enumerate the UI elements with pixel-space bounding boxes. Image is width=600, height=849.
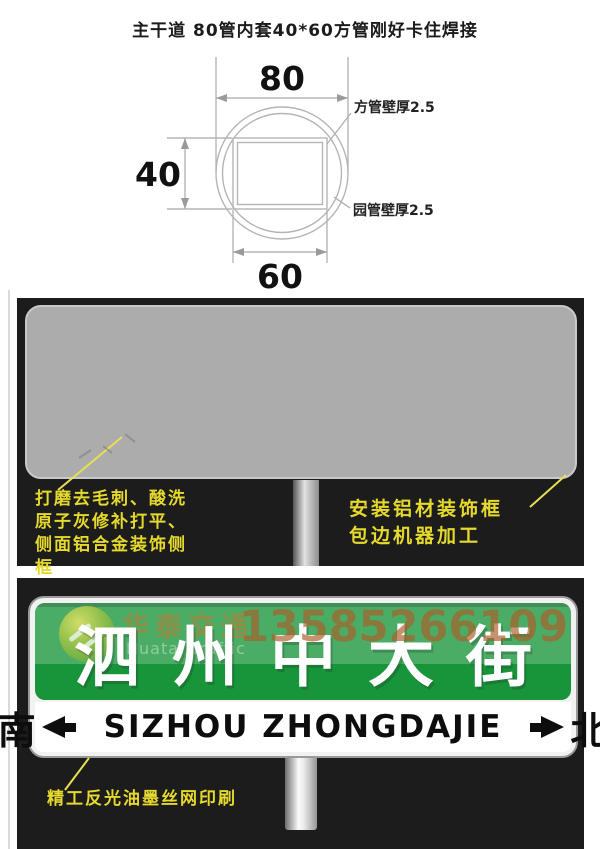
note-line: 安装铝材装饰框: [349, 496, 503, 523]
leader-line-round-tube: [334, 197, 350, 208]
street-sign-board: 华泰交通 Huatai Traffic 泗州中大街 13585266109 南 …: [28, 596, 578, 758]
square-tube-inner-rect: [238, 143, 323, 205]
note-line: 原子灰修补打平、: [35, 511, 187, 534]
sign-pole: [293, 480, 319, 566]
arrow-right-icon: [530, 716, 564, 738]
blank-sign-board: [25, 305, 577, 479]
direction-north-label: 北: [570, 700, 600, 755]
arrow-left-icon: [42, 716, 76, 738]
dimension-60: 60: [257, 257, 303, 296]
note-line: 包边机器加工: [349, 523, 503, 550]
pipe-cross-section-diagram: 80 40 60 方管壁厚2.5 园管壁厚2.5: [0, 42, 600, 296]
round-tube-outer-circle: [216, 107, 348, 239]
right-process-note: 安装铝材装饰框 包边机器加工: [349, 496, 503, 550]
sign-pole: [285, 758, 317, 830]
note-line: 打磨去毛刺、酸洗: [35, 488, 187, 511]
finished-sign-photo-panel: 华泰交通 Huatai Traffic 泗州中大街 13585266109 南 …: [17, 578, 584, 849]
round-tube-inner-circle: [223, 114, 342, 233]
note-line: 侧面铝合金装饰侧: [35, 534, 187, 557]
direction-south-label: 南: [0, 700, 36, 755]
watermark-phone-number: 13585266109: [239, 602, 568, 652]
dimension-80: 80: [259, 59, 305, 98]
drawing-title: 主干道 80管内套40*60方管刚好卡住焊接: [0, 16, 600, 41]
printing-process-note: 精工反光油墨丝网印刷: [47, 784, 237, 809]
blank-sign-photo-panel: 打磨去毛刺、酸洗 原子灰修补打平、 侧面铝合金装饰侧 框 安装铝材装饰框 包边机…: [17, 298, 584, 566]
left-margin-rule: [8, 290, 10, 849]
round-tube-wall-label: 园管壁厚2.5: [353, 202, 434, 219]
sign-pinyin-strip: 南 SIZHOU ZHONGDAJIE 北: [35, 702, 571, 752]
note-line: 框: [35, 557, 187, 580]
square-tube-outer-rect: [233, 138, 327, 209]
square-tube-wall-label: 方管壁厚2.5: [354, 99, 435, 116]
street-name-pinyin: SIZHOU ZHONGDAJIE: [104, 709, 503, 745]
dimension-40: 40: [135, 155, 181, 194]
left-process-note: 打磨去毛刺、酸洗 原子灰修补打平、 侧面铝合金装饰侧 框: [35, 488, 187, 580]
